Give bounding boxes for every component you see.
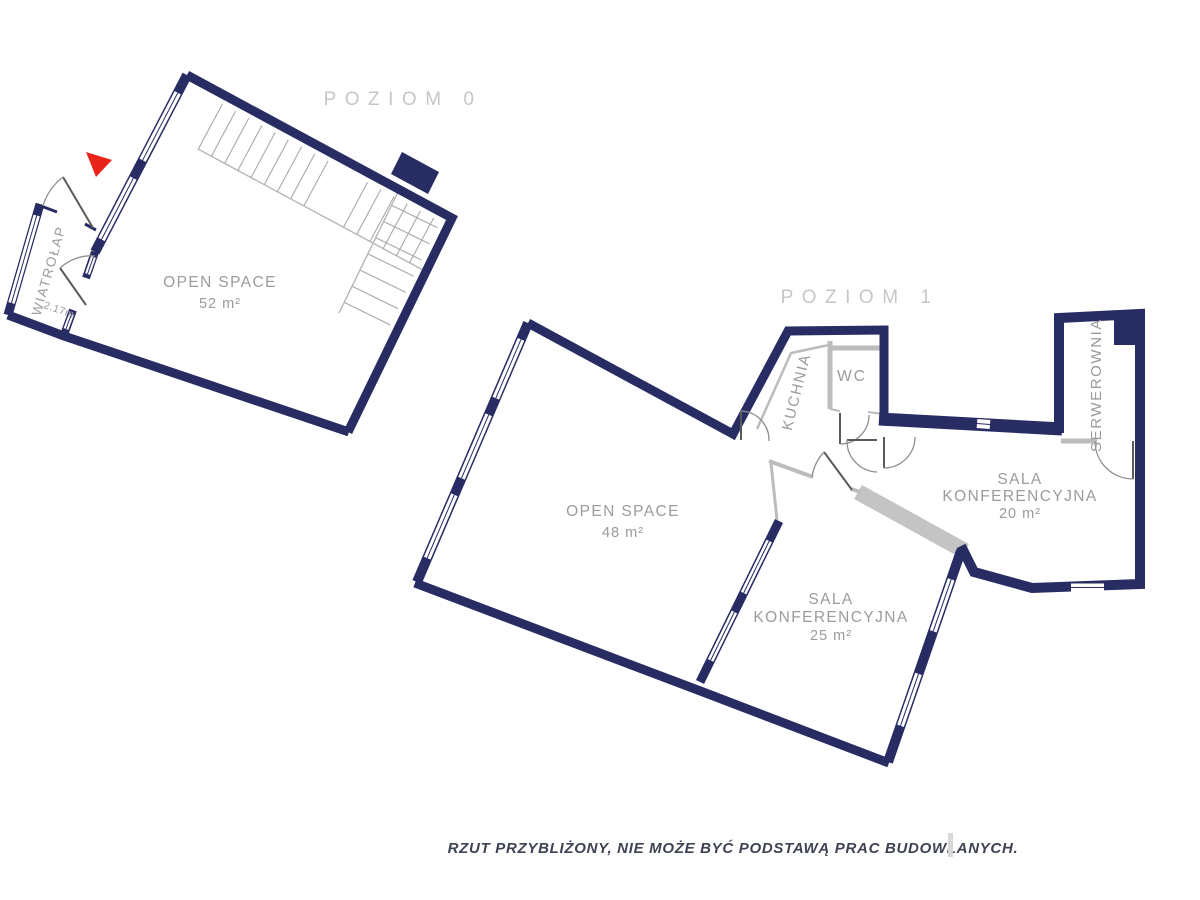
room-label-serwerownia: SERWEROWNIA (1088, 318, 1105, 452)
serwerownia-sala20-walls (961, 314, 1140, 588)
floorplan-page: POZIOM 0 OPEN SPACE 52 m² WIATROŁAP 2.17… (0, 0, 1200, 900)
level0-window-wall (95, 75, 187, 252)
entrance-arrow-icon (86, 152, 112, 177)
sala20-door (884, 437, 915, 468)
room-label-sala20-line2: KONFERENCYJNA (942, 488, 1097, 505)
footer: RZUT PRZYBLIŻONY, NIE MOŻE BYĆ PODSTAWĄ … (448, 833, 1019, 857)
dim-label-wiatrolap: 2.17m (42, 299, 76, 321)
room-label-wc: WC (837, 368, 867, 385)
room-label-kuchnia: KUCHNIA (779, 352, 815, 432)
room-label-open-space-52: OPEN SPACE (163, 274, 277, 291)
room-label-open-space-48: OPEN SPACE (566, 503, 680, 520)
room-area-open-space-48: 48 m² (602, 525, 644, 541)
hall-openspace-door (812, 452, 852, 490)
stair-treads (198, 104, 437, 325)
level1-title: POZIOM 1 (781, 287, 940, 308)
room-area-sala20: 20 m² (999, 506, 1041, 522)
staircase (198, 104, 437, 325)
entry-door (43, 177, 93, 228)
room-label-sala25-line1: SALA (808, 591, 853, 608)
serwerownia-notch (1114, 319, 1141, 345)
room-area-sala25: 25 m² (810, 628, 852, 644)
level0-window-wall-lower (64, 252, 95, 335)
sala20-top-band-wall (879, 419, 1062, 429)
level1-plan: POZIOM 1 OPEN SPACE 48 m² SALA KONFERENC… (415, 287, 1141, 763)
level0-plan: POZIOM 0 OPEN SPACE 52 m² WIATROŁAP 2.17… (8, 75, 482, 432)
level0-bottom-walls (8, 315, 349, 432)
level0-title: POZIOM 0 (324, 89, 483, 110)
partition-window-wall (700, 521, 779, 682)
floorplan-drawing: POZIOM 0 OPEN SPACE 52 m² WIATROŁAP 2.17… (0, 0, 1200, 900)
hall-partition-gray (771, 463, 777, 520)
room-label-sala25-line2: KONFERENCYJNA (753, 609, 908, 626)
sala25-window-wall (888, 551, 961, 762)
band-window (977, 424, 990, 425)
room-area-open-space-52: 52 m² (199, 296, 241, 312)
open48-window-wall (417, 323, 528, 582)
hall-corner-door (847, 440, 877, 472)
disclaimer-note: RZUT PRZYBLIŻONY, NIE MOŻE BYĆ PODSTAWĄ … (448, 839, 1019, 857)
room-label-sala20-line1: SALA (997, 471, 1042, 488)
text-caret (948, 833, 953, 857)
wc-door-jambs (830, 409, 884, 414)
